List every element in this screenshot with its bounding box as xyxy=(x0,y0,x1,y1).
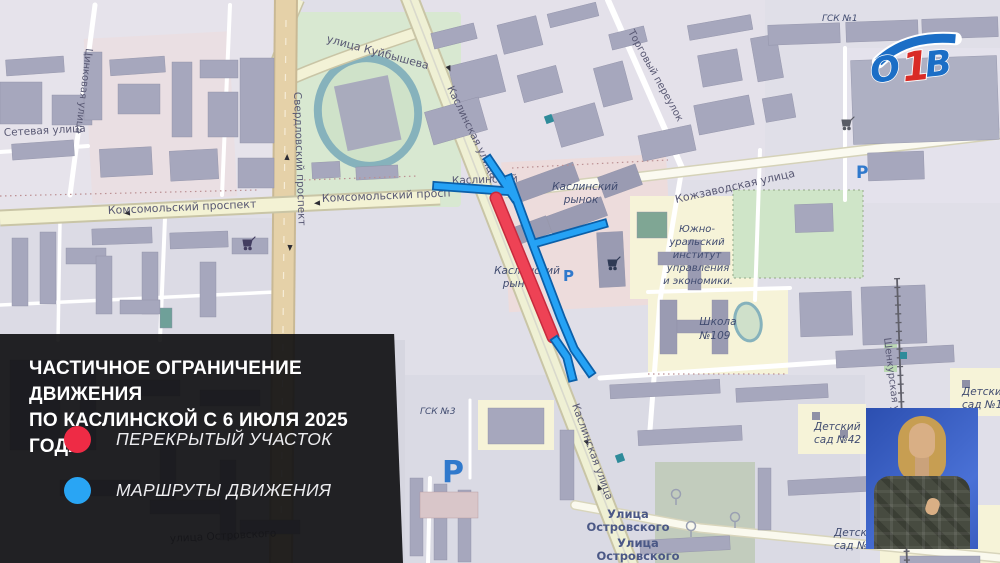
legend-closed-label: ПЕРЕКРЫТЫЙ УЧАСТОК xyxy=(116,429,332,450)
svg-text:уральский: уральский xyxy=(668,237,725,248)
sign-language-interpreter xyxy=(866,408,978,549)
street-label-ostrovskogo-2b: Островского xyxy=(596,549,679,563)
tv-broadcast-frame: Сетевая улица Цинковая улица улица Куйбы… xyxy=(0,0,1000,563)
svg-text:Южно-: Южно- xyxy=(679,224,715,235)
street-label-ostrovskogo-2a: Улица xyxy=(617,536,659,550)
poi-label-school-b: №109 xyxy=(699,330,731,342)
info-panel: ЧАСТИЧНОЕ ОГРАНИЧЕНИЕ ДВИЖЕНИЯ ПО КАСЛИН… xyxy=(0,334,403,563)
poi-label-kinder1-a: Детский xyxy=(961,386,1000,398)
poi-label-gsk1: ГСК №1 xyxy=(822,14,858,24)
street-label-ostrovskogo-1b: Островского xyxy=(586,520,669,534)
svg-text:и экономики.: и экономики. xyxy=(663,276,733,287)
panel-title-line1: ЧАСТИЧНОЕ ОГРАНИЧЕНИЕ ДВИЖЕНИЯ xyxy=(29,356,401,408)
poi-label-gsk3: ГСК №3 xyxy=(420,407,456,417)
legend-detour-label: МАРШРУТЫ ДВИЖЕНИЯ xyxy=(116,480,331,501)
parking-icon: Р xyxy=(442,455,464,490)
detour-routes-swatch xyxy=(64,477,91,504)
poi-label-school-a: Школа xyxy=(699,316,736,328)
svg-text:1: 1 xyxy=(900,43,932,84)
svg-text:О: О xyxy=(868,49,902,84)
otv-logo-icon: О В 1 xyxy=(868,36,960,84)
closed-section-swatch xyxy=(64,426,91,453)
poi-label-kinder42-b: сад №42 xyxy=(814,434,861,446)
poi-label-kinder42-a: Детский xyxy=(813,421,861,433)
channel-logo: О В 1 xyxy=(868,28,964,84)
poi-label-market1-a: Каслинский xyxy=(552,181,618,193)
legend-detour-routes: МАРШРУТЫ ДВИЖЕНИЯ xyxy=(64,477,331,504)
parking-icon: Р xyxy=(856,163,868,183)
interpreter-torso xyxy=(874,476,970,549)
interpreter-face xyxy=(909,423,935,458)
svg-text:управления: управления xyxy=(666,263,729,274)
parking-icon: Р xyxy=(563,267,574,285)
svg-text:институт: институт xyxy=(673,250,723,261)
poi-label-market1-b: рынок xyxy=(563,194,599,206)
legend-closed-section: ПЕРЕКРЫТЫЙ УЧАСТОК xyxy=(64,426,332,453)
street-label-ostrovskogo-1a: Улица xyxy=(607,507,649,521)
